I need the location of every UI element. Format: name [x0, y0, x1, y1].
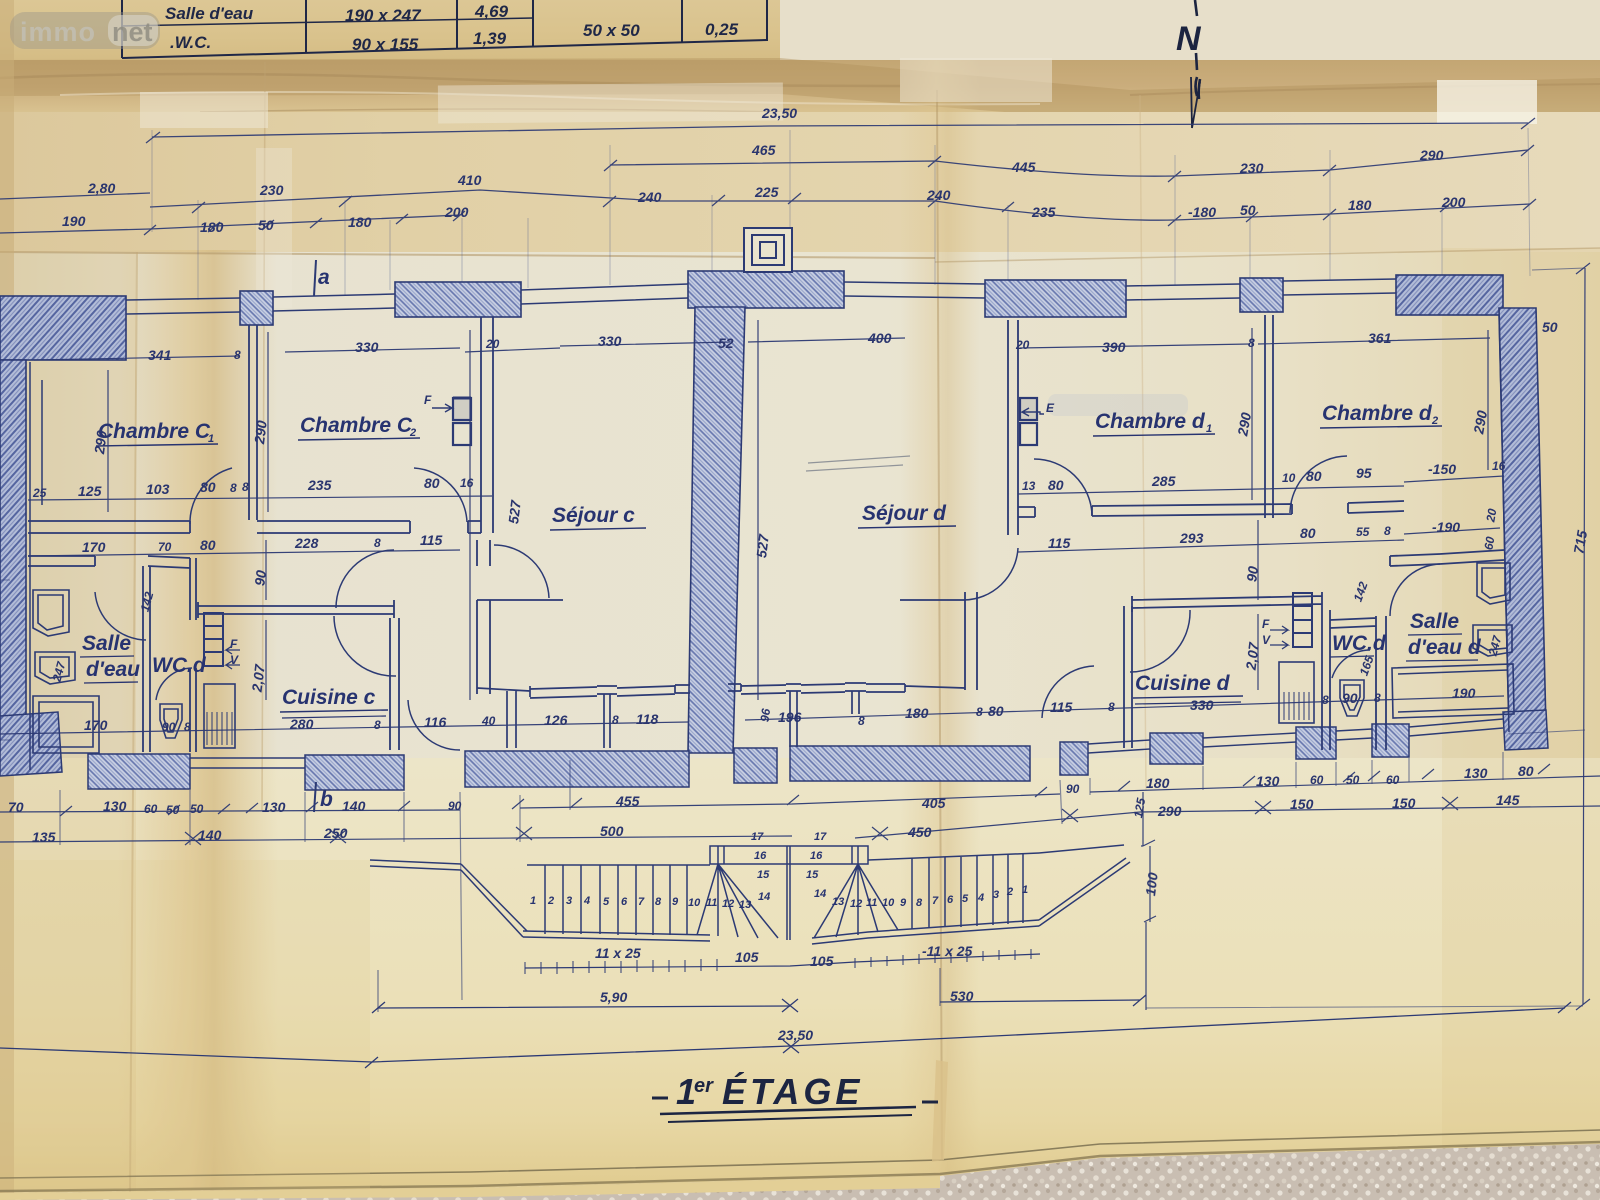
svg-text:23,50: 23,50 — [777, 1027, 813, 1043]
svg-text:1,39: 1,39 — [473, 29, 507, 48]
svg-text:50: 50 — [1542, 319, 1558, 335]
svg-text:100: 100 — [1142, 871, 1161, 896]
svg-text:16: 16 — [460, 476, 474, 490]
svg-text:8: 8 — [1384, 524, 1391, 538]
svg-text:11: 11 — [866, 897, 877, 909]
svg-text:0,25: 0,25 — [705, 20, 739, 39]
svg-text:90 x 155: 90 x 155 — [352, 35, 419, 54]
svg-text:immo: immo — [20, 17, 96, 47]
svg-text:330: 330 — [1190, 697, 1214, 713]
svg-text:527: 527 — [505, 498, 524, 524]
svg-text:400: 400 — [867, 330, 892, 346]
svg-text:12: 12 — [722, 898, 734, 910]
svg-text:50 x 50: 50 x 50 — [583, 21, 640, 40]
svg-text:125: 125 — [78, 483, 102, 499]
svg-text:230: 230 — [1239, 160, 1264, 176]
svg-text:3: 3 — [993, 889, 999, 901]
svg-text:20: 20 — [1483, 507, 1499, 524]
svg-text:F: F — [1262, 617, 1270, 631]
svg-text:Cuisine c: Cuisine c — [282, 686, 376, 709]
svg-text:13: 13 — [832, 896, 844, 908]
svg-text:10: 10 — [1282, 471, 1296, 485]
svg-text:16: 16 — [810, 850, 823, 862]
svg-text:50: 50 — [166, 803, 180, 817]
svg-text:40: 40 — [481, 714, 496, 728]
svg-text:80: 80 — [1306, 468, 1322, 484]
svg-text:126: 126 — [544, 712, 568, 728]
svg-text:er: er — [694, 1075, 714, 1097]
svg-text:V: V — [1262, 633, 1271, 647]
svg-text:10: 10 — [688, 897, 701, 909]
svg-text:180: 180 — [905, 705, 929, 721]
svg-text:445: 445 — [1011, 159, 1036, 175]
svg-text:N: N — [1176, 20, 1202, 58]
svg-text:150: 150 — [1392, 795, 1416, 811]
svg-text:70: 70 — [8, 799, 24, 815]
svg-text:d'eau: d'eau — [86, 658, 140, 681]
svg-text:2,80: 2,80 — [87, 180, 115, 196]
svg-text:130: 130 — [1256, 773, 1280, 789]
svg-text:130: 130 — [262, 799, 286, 815]
svg-text:285: 285 — [1151, 473, 1176, 489]
svg-text:Salle d'eau: Salle d'eau — [165, 4, 254, 23]
svg-text:230: 230 — [259, 182, 284, 198]
svg-text:Salle: Salle — [1410, 610, 1459, 633]
svg-text:293: 293 — [1179, 530, 1204, 546]
svg-text:130: 130 — [103, 798, 127, 814]
svg-text:196: 196 — [778, 709, 802, 725]
svg-text:50: 50 — [258, 217, 274, 233]
svg-text:80: 80 — [1518, 763, 1534, 779]
svg-text:190 x 247: 190 x 247 — [345, 6, 422, 25]
svg-text:20: 20 — [1015, 338, 1030, 352]
svg-text:8: 8 — [976, 705, 983, 719]
svg-text:6: 6 — [621, 896, 628, 908]
svg-text:145: 145 — [1496, 792, 1520, 808]
svg-text:6: 6 — [947, 894, 954, 906]
svg-text:13: 13 — [1022, 479, 1036, 493]
svg-text:115: 115 — [1050, 699, 1073, 715]
svg-text:103: 103 — [146, 481, 170, 497]
svg-text:1: 1 — [1206, 423, 1212, 435]
svg-text:140: 140 — [198, 827, 222, 843]
svg-text:52: 52 — [718, 335, 734, 351]
svg-text:60: 60 — [1310, 773, 1324, 787]
svg-text:235: 235 — [1031, 204, 1056, 220]
svg-text:170: 170 — [82, 539, 106, 555]
svg-text:WC.d: WC.d — [152, 654, 207, 677]
svg-text:7: 7 — [638, 896, 645, 908]
svg-text:F: F — [230, 637, 238, 651]
svg-text:F: F — [424, 393, 432, 407]
svg-text:330: 330 — [355, 339, 379, 355]
svg-text:d'eau d: d'eau d — [1408, 636, 1482, 659]
svg-text:WC.d: WC.d — [1332, 632, 1387, 655]
svg-text:80: 80 — [200, 479, 216, 495]
svg-text:a: a — [318, 266, 330, 289]
svg-text:8: 8 — [655, 896, 662, 908]
svg-text:290: 290 — [91, 429, 110, 455]
svg-text:17: 17 — [751, 831, 764, 843]
svg-text:80: 80 — [200, 537, 216, 553]
svg-text:Chambre C: Chambre C — [300, 414, 413, 437]
svg-text:10: 10 — [882, 897, 895, 909]
svg-text:50: 50 — [1240, 202, 1256, 218]
svg-text:8: 8 — [374, 718, 381, 732]
svg-text:116: 116 — [424, 714, 447, 730]
svg-text:25: 25 — [32, 486, 47, 500]
svg-text:8: 8 — [374, 536, 381, 550]
svg-text:8: 8 — [184, 720, 191, 734]
svg-text:8: 8 — [230, 481, 237, 495]
svg-text:net: net — [112, 17, 153, 47]
svg-text:290: 290 — [1157, 803, 1182, 819]
svg-text:180: 180 — [1146, 775, 1170, 791]
svg-text:190: 190 — [1452, 685, 1476, 701]
svg-text:225: 225 — [754, 184, 779, 200]
svg-text:8: 8 — [1248, 336, 1255, 350]
svg-text:11 x 25: 11 x 25 — [595, 945, 641, 961]
svg-text:1: 1 — [208, 433, 214, 445]
svg-text:2: 2 — [1431, 415, 1438, 427]
svg-text:14: 14 — [758, 891, 770, 903]
svg-text:170: 170 — [84, 717, 108, 733]
svg-text:80: 80 — [1048, 477, 1064, 493]
svg-text:5: 5 — [962, 893, 969, 905]
svg-text:5,90: 5,90 — [600, 989, 627, 1005]
svg-text:130: 130 — [1464, 765, 1488, 781]
svg-text:250: 250 — [323, 825, 348, 841]
svg-text:135: 135 — [32, 829, 56, 845]
svg-text:Séjour d: Séjour d — [862, 502, 947, 525]
svg-text:2: 2 — [547, 895, 554, 907]
svg-text:180: 180 — [348, 214, 372, 230]
svg-text:-11 x 25: -11 x 25 — [922, 943, 973, 959]
svg-text:200: 200 — [1441, 194, 1466, 210]
svg-text:80: 80 — [424, 475, 440, 491]
svg-text:140: 140 — [342, 798, 366, 814]
svg-text:240: 240 — [926, 187, 951, 203]
svg-text:330: 330 — [598, 333, 622, 349]
svg-text:14: 14 — [814, 888, 826, 900]
svg-text:E: E — [1046, 401, 1055, 415]
svg-text:410: 410 — [457, 172, 482, 188]
svg-text:8: 8 — [234, 348, 241, 362]
svg-text:8: 8 — [916, 897, 923, 909]
svg-text:80: 80 — [988, 703, 1004, 719]
svg-text:Chambre d: Chambre d — [1095, 410, 1206, 433]
svg-text:235: 235 — [307, 477, 332, 493]
svg-text:2: 2 — [1006, 886, 1013, 898]
svg-text:465: 465 — [751, 142, 776, 158]
svg-text:50: 50 — [1346, 773, 1360, 787]
svg-text:90: 90 — [1342, 690, 1358, 706]
svg-text:4,69: 4,69 — [474, 2, 509, 21]
svg-text:60: 60 — [1386, 773, 1400, 787]
svg-text:527: 527 — [753, 532, 772, 558]
svg-text:90: 90 — [1066, 782, 1080, 796]
svg-text:b: b — [320, 788, 333, 811]
svg-text:290: 290 — [251, 419, 270, 445]
svg-text:8: 8 — [1374, 691, 1381, 705]
svg-text:90: 90 — [162, 720, 176, 734]
svg-text:1: 1 — [1022, 884, 1028, 896]
svg-text:115: 115 — [1048, 535, 1071, 551]
svg-text:280: 280 — [289, 716, 314, 732]
svg-text:13: 13 — [739, 899, 751, 911]
svg-text:9: 9 — [900, 897, 907, 909]
svg-text:500: 500 — [600, 823, 624, 839]
svg-text:8: 8 — [1108, 700, 1115, 714]
svg-text:530: 530 — [950, 988, 974, 1004]
svg-text:8: 8 — [242, 480, 249, 494]
svg-text:20: 20 — [485, 337, 500, 351]
svg-text:23,50: 23,50 — [761, 105, 797, 121]
svg-text:7: 7 — [932, 895, 939, 907]
svg-text:190: 190 — [62, 213, 86, 229]
svg-text:115: 115 — [420, 532, 443, 548]
svg-text:.W.C.: .W.C. — [170, 33, 211, 52]
svg-text:180: 180 — [200, 219, 224, 235]
svg-text:90: 90 — [251, 569, 269, 587]
svg-text:8: 8 — [612, 713, 619, 727]
svg-text:405: 405 — [921, 795, 946, 811]
svg-text:80: 80 — [1300, 525, 1316, 541]
svg-text:341: 341 — [148, 347, 172, 363]
svg-text:50: 50 — [190, 802, 204, 816]
svg-text:15: 15 — [806, 869, 819, 881]
svg-text:60: 60 — [144, 802, 158, 816]
svg-text:15: 15 — [757, 869, 770, 881]
svg-text:150: 150 — [1290, 796, 1314, 812]
svg-text:17: 17 — [814, 831, 827, 843]
svg-text:8: 8 — [1322, 693, 1329, 707]
svg-text:-190: -190 — [1432, 519, 1460, 535]
svg-text:200: 200 — [444, 204, 469, 220]
svg-text:55: 55 — [1356, 525, 1370, 539]
svg-text:4: 4 — [977, 892, 984, 904]
svg-text:3: 3 — [566, 895, 572, 907]
svg-text:118: 118 — [636, 711, 659, 727]
svg-text:180: 180 — [1348, 197, 1372, 213]
svg-text:12: 12 — [850, 898, 862, 910]
svg-text:11: 11 — [706, 897, 717, 909]
svg-text:361: 361 — [1368, 330, 1392, 346]
svg-text:90: 90 — [1243, 565, 1261, 583]
svg-text:105: 105 — [735, 949, 759, 965]
svg-text:70: 70 — [158, 540, 172, 554]
svg-text:96: 96 — [758, 707, 774, 722]
svg-text:Séjour c: Séjour c — [552, 504, 635, 527]
svg-text:9: 9 — [672, 896, 679, 908]
svg-text:390: 390 — [1102, 339, 1126, 355]
svg-text:Chambre d: Chambre d — [1322, 402, 1433, 425]
svg-text:60: 60 — [1481, 535, 1497, 551]
svg-text:8: 8 — [858, 714, 865, 728]
svg-text:228: 228 — [294, 535, 319, 551]
svg-text:Cuisine d: Cuisine d — [1135, 672, 1231, 695]
svg-text:90: 90 — [448, 799, 462, 813]
svg-text:450: 450 — [907, 824, 932, 840]
svg-text:4: 4 — [583, 895, 590, 907]
svg-text:2: 2 — [409, 427, 416, 439]
svg-text:Chambre C: Chambre C — [98, 420, 211, 443]
svg-text:105: 105 — [810, 953, 834, 969]
svg-text:16: 16 — [754, 850, 767, 862]
svg-text:ÉTAGE: ÉTAGE — [722, 1071, 863, 1112]
svg-text:455: 455 — [615, 793, 640, 809]
svg-text:1: 1 — [530, 895, 536, 907]
svg-text:95: 95 — [1356, 465, 1372, 481]
svg-text:-150: -150 — [1428, 461, 1456, 477]
svg-text:Salle: Salle — [82, 632, 131, 655]
svg-text:-180: -180 — [1188, 204, 1216, 220]
svg-text:5: 5 — [603, 896, 610, 908]
svg-text:240: 240 — [637, 189, 662, 205]
svg-text:290: 290 — [1419, 147, 1444, 163]
svg-text:16: 16 — [1492, 459, 1506, 473]
